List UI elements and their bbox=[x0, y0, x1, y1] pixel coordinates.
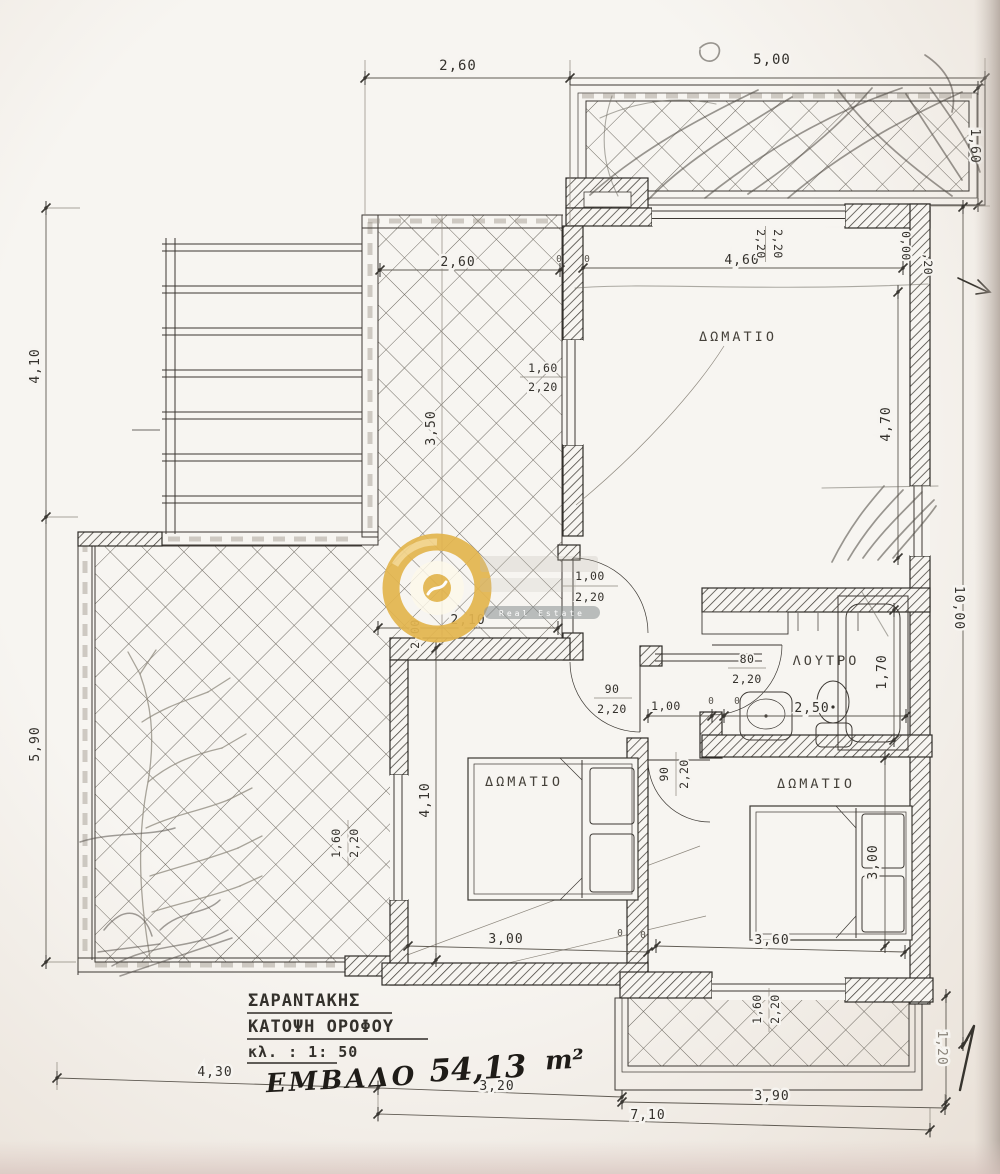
door-room2-d: 2,20 bbox=[597, 702, 627, 716]
door-room3-n: 90 bbox=[657, 767, 671, 782]
bed-room3 bbox=[750, 806, 912, 940]
win-room2-d: 2,20 bbox=[347, 828, 361, 858]
win-terrace-d: 2,20 bbox=[528, 380, 558, 394]
door-bath-d: 2,20 bbox=[732, 672, 762, 686]
title-scale: κλ. : 1: 50 bbox=[248, 1043, 358, 1061]
dim-top-left: 2,60 bbox=[439, 58, 477, 74]
dim-right-overall: 10,00 bbox=[951, 586, 966, 630]
dim-room3-h: 3,00 bbox=[866, 844, 881, 879]
watermark-ghost-text bbox=[480, 556, 598, 572]
title-client-name: ΣΑΡΑΝΤΑΚΗΣ bbox=[248, 991, 360, 1011]
level-twenty: ,20 bbox=[921, 253, 935, 275]
area-value: 54,13 bbox=[429, 1049, 528, 1090]
dim-right-lower: 1,20 bbox=[934, 1030, 949, 1065]
dim-left-upper: 4,10 bbox=[28, 348, 43, 383]
window-room2-left bbox=[390, 775, 408, 900]
win-room1-a: 2,20 bbox=[754, 229, 768, 259]
win-terrace-n: 1,60 bbox=[528, 361, 558, 375]
zero-label: 0 bbox=[640, 930, 646, 941]
dim-bottom-c: 3,90 bbox=[754, 1089, 789, 1104]
win-room2-n: 1,60 bbox=[329, 828, 343, 858]
scanned-floor-plan-page: 2,60 5,00 1,60 10,00 1,20 4,10 5,90 4,30… bbox=[0, 0, 1000, 1174]
zero-label: 0 bbox=[708, 696, 714, 707]
room3-label: ΔΩΜΑΤΙΟ bbox=[777, 776, 855, 792]
dim-tub-l: 1,70 bbox=[875, 654, 890, 689]
dim-terrace-h: 3,50 bbox=[424, 410, 439, 445]
window-terrace-wall bbox=[563, 340, 583, 445]
zero-label: 0 bbox=[584, 254, 590, 265]
door-bath-n: 80 bbox=[740, 652, 755, 666]
dim-room3-w: 3,60 bbox=[754, 933, 789, 948]
bath-label: ΛΟΥΤΡΟ bbox=[793, 653, 860, 669]
dim-room1-h: 4,70 bbox=[879, 406, 894, 441]
dim-bottom-a: 4,30 bbox=[197, 1065, 232, 1080]
zero-label: 0 bbox=[617, 928, 623, 939]
zero-label: 0 bbox=[734, 696, 740, 707]
level-zero: 0,00 bbox=[899, 231, 913, 261]
door-room3-d: 2,20 bbox=[677, 759, 691, 789]
dim-bath-w: 2,50 bbox=[794, 701, 829, 716]
room2-label: ΔΩΜΑΤΙΟ bbox=[485, 774, 563, 790]
dim-terrace-w: 2,60 bbox=[440, 255, 475, 270]
win-room3-n: 1,60 bbox=[750, 994, 764, 1024]
title-drawing-name: ΚΑΤΟΨΗ ΟΡΟΦΟΥ bbox=[248, 1017, 394, 1037]
scan-edge-bottom bbox=[0, 1140, 1000, 1174]
dim-top-right: 5,00 bbox=[753, 52, 791, 68]
watermark-brand: Real Estate bbox=[499, 609, 585, 618]
win-room1-b: 2,20 bbox=[771, 229, 785, 259]
dim-room2-h: 4,10 bbox=[418, 782, 433, 817]
door-entry-d: 2,20 bbox=[575, 590, 605, 604]
door-room2-n: 90 bbox=[605, 682, 620, 696]
scan-edge-right bbox=[974, 0, 1000, 1174]
area-unit: m² bbox=[544, 1045, 584, 1077]
dim-room2-w: 3,00 bbox=[488, 932, 523, 947]
win-room3-d: 2,20 bbox=[768, 994, 782, 1024]
floor-plan-drawing: 2,60 5,00 1,60 10,00 1,20 4,10 5,90 4,30… bbox=[0, 0, 1000, 1174]
window-room1-top bbox=[652, 206, 845, 226]
zero-label: 0 bbox=[556, 254, 562, 265]
dim-bottom-d: 7,10 bbox=[630, 1108, 665, 1123]
dim-corridor: 1,00 bbox=[651, 699, 681, 713]
dim-left-lower: 5,90 bbox=[28, 726, 43, 761]
room1-label: ΔΩΜΑΤΙΟ bbox=[699, 329, 777, 345]
